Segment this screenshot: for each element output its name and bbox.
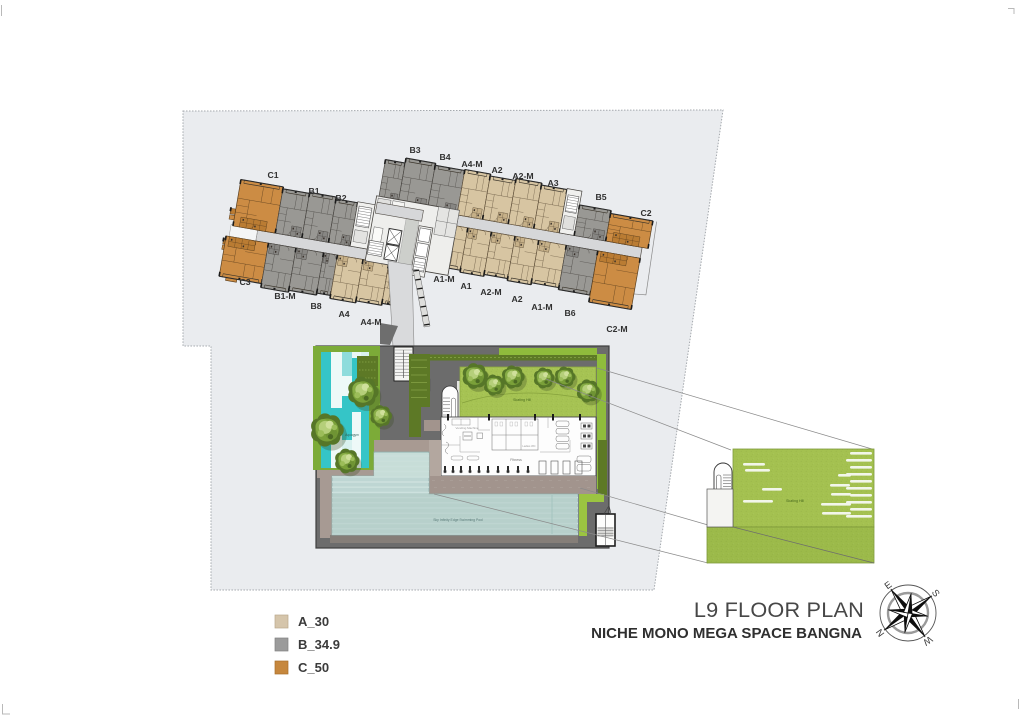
svg-text:C3: C3	[239, 277, 250, 287]
svg-text:Ladies WC: Ladies WC	[522, 444, 535, 448]
svg-text:C2-M: C2-M	[606, 324, 627, 334]
svg-text:Skating Hill: Skating Hill	[786, 499, 804, 503]
svg-text:C1: C1	[267, 170, 278, 180]
svg-text:Fitness: Fitness	[510, 458, 522, 462]
svg-text:Aquagym: Aquagym	[345, 433, 359, 437]
svg-text:A2-M: A2-M	[480, 287, 501, 297]
svg-text:A4: A4	[338, 309, 349, 319]
svg-text:B3: B3	[409, 145, 420, 155]
svg-text:B5: B5	[595, 192, 606, 202]
svg-text:A1-M: A1-M	[531, 302, 552, 312]
svg-text:A2: A2	[511, 294, 522, 304]
svg-text:B8: B8	[310, 301, 321, 311]
svg-text:B1-M: B1-M	[274, 291, 295, 301]
svg-text:B_34.9: B_34.9	[298, 637, 340, 652]
svg-text:NICHE MONO MEGA SPACE BANGNA: NICHE MONO MEGA SPACE BANGNA	[591, 625, 862, 642]
svg-text:A2: A2	[491, 165, 502, 175]
svg-text:B1: B1	[308, 186, 319, 196]
svg-text:A1: A1	[460, 281, 471, 291]
svg-text:Sky Infinity Edge Swimming Poo: Sky Infinity Edge Swimming Pool	[433, 518, 483, 522]
svg-text:A_30: A_30	[298, 614, 329, 629]
svg-text:B2: B2	[335, 193, 346, 203]
svg-text:B6: B6	[564, 308, 575, 318]
svg-text:A4-M: A4-M	[360, 317, 381, 327]
svg-text:Vending Machine: Vending Machine	[455, 426, 478, 430]
svg-text:A1-M: A1-M	[433, 274, 454, 284]
svg-text:A4-M: A4-M	[461, 159, 482, 169]
svg-text:A2-M: A2-M	[512, 171, 533, 181]
svg-text:C_50: C_50	[298, 660, 329, 675]
svg-text:Skating Hill: Skating Hill	[513, 398, 531, 402]
svg-text:A3: A3	[547, 178, 558, 188]
svg-text:L9 FLOOR PLAN: L9 FLOOR PLAN	[694, 597, 864, 622]
svg-text:B4: B4	[439, 152, 450, 162]
svg-text:C2: C2	[640, 208, 651, 218]
